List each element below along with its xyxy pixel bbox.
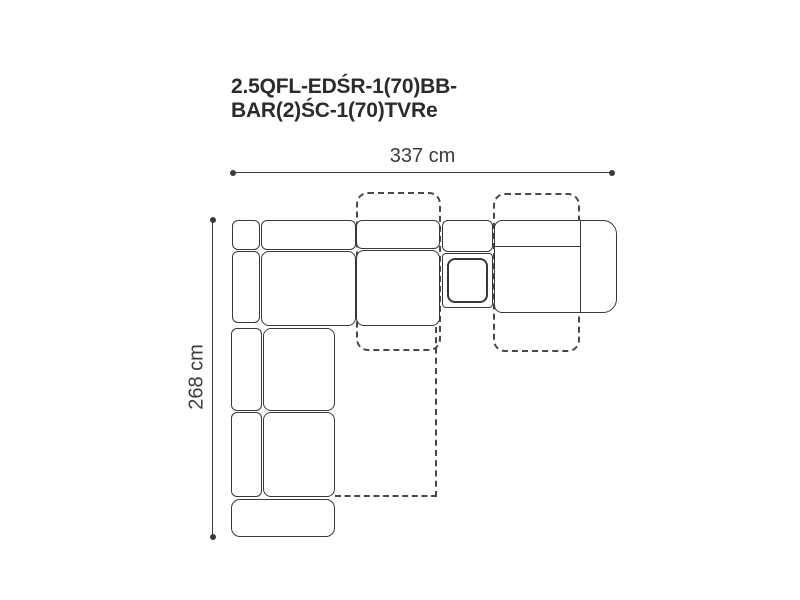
ottoman-end — [231, 499, 335, 537]
width-dimension-dot-left — [230, 170, 236, 176]
width-dimension-line — [233, 172, 612, 173]
product-code-line-2: BAR(2)ŚC-1(70)TVRe — [231, 99, 457, 123]
height-dimension-line — [212, 220, 213, 537]
right-module-arm-divider — [580, 220, 581, 313]
width-dimension-label: 337 cm — [233, 145, 612, 168]
right-module — [494, 220, 617, 313]
chaise-back-strip-upper — [231, 328, 262, 411]
middle-backrest — [356, 220, 440, 249]
bar-backrest — [442, 220, 493, 252]
corner-seat — [261, 251, 356, 326]
middle-seat — [356, 250, 440, 326]
corner-back-top — [261, 220, 356, 250]
chaise-back-strip-lower — [231, 412, 262, 497]
chaise-seat-upper — [263, 328, 335, 411]
height-dimension-dot-bottom — [210, 534, 216, 540]
chaise-seat-lower — [263, 412, 335, 497]
product-code-title: 2.5QFL-EDŚR-1(70)BB-BAR(2)ŚC-1(70)TVRe — [231, 75, 457, 123]
width-dimension-dot-right — [609, 170, 615, 176]
bar-tray — [447, 258, 488, 303]
sofa-plan-diagram: 2.5QFL-EDŚR-1(70)BB-BAR(2)ŚC-1(70)TVRe 3… — [0, 0, 800, 600]
height-dimension-label: 268 cm — [186, 344, 209, 410]
corner-back-left — [232, 251, 260, 323]
corner-back-square — [232, 220, 260, 250]
right-module-backrest-divider — [494, 246, 580, 247]
product-code-line-1: 2.5QFL-EDŚR-1(70)BB- — [231, 75, 457, 99]
height-dimension-dot-top — [210, 217, 216, 223]
fold-out-bed-extension-outline — [335, 327, 437, 497]
